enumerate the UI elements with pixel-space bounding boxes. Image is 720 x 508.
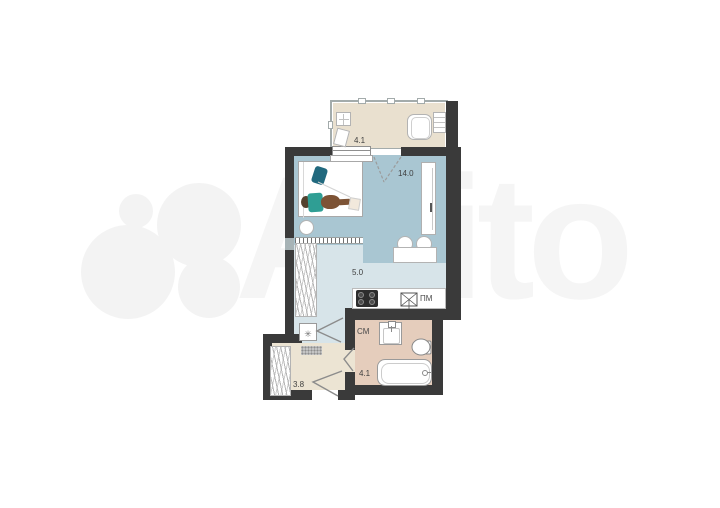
bed-pillow-dark	[311, 165, 329, 185]
bar-counter	[393, 247, 437, 263]
wall-bathroom-right	[432, 308, 443, 395]
wall-hall-bathroom-upper	[345, 312, 355, 350]
kitchen-area-label: 5.0	[352, 268, 363, 277]
balcony-window-tick	[358, 98, 366, 104]
bedside-stool	[299, 220, 314, 235]
hallway-area-label: 3.8	[293, 380, 304, 389]
bed	[298, 161, 363, 217]
fridge: ✳	[299, 323, 317, 341]
bathtub-faucet	[422, 370, 428, 376]
living-room-area-label: 14.0	[398, 169, 414, 178]
window-frame-line	[333, 150, 370, 151]
doormat	[301, 346, 322, 355]
desk-chair	[407, 114, 432, 140]
balcony-window-tick	[328, 121, 333, 129]
balcony-shelf	[336, 112, 351, 126]
floorplan: ✳ ПМ СМ	[0, 0, 720, 508]
wardrobe-hallway	[270, 346, 291, 396]
floorplan-page: Avito	[0, 0, 720, 508]
washing-machine-label: СМ	[357, 327, 369, 336]
balcony-window-tick	[417, 98, 425, 104]
balcony-area-label: 4.1	[354, 136, 365, 145]
wall-top-right	[401, 147, 451, 156]
tv-unit	[421, 162, 436, 235]
fridge-snowflake-icon: ✳	[304, 329, 312, 339]
bathroom-area-label: 4.1	[359, 369, 370, 378]
wall-kitchen-bathroom	[345, 308, 443, 320]
bathroom-sink	[379, 322, 402, 345]
wall-bathroom-bottom	[345, 385, 443, 395]
hallway-doorway-floor	[345, 348, 355, 372]
wall-balcony-right	[446, 101, 458, 148]
stove	[356, 290, 378, 307]
desk	[433, 112, 446, 133]
bed-pillow-white	[348, 197, 361, 211]
dishwasher-label: ПМ	[420, 294, 432, 303]
bathtub	[377, 359, 432, 386]
balcony-window-tick	[387, 98, 395, 104]
wall-niche	[285, 238, 294, 250]
wall-right	[446, 147, 461, 320]
wardrobe-kitchen	[295, 243, 317, 317]
sink-faucet	[388, 321, 396, 328]
